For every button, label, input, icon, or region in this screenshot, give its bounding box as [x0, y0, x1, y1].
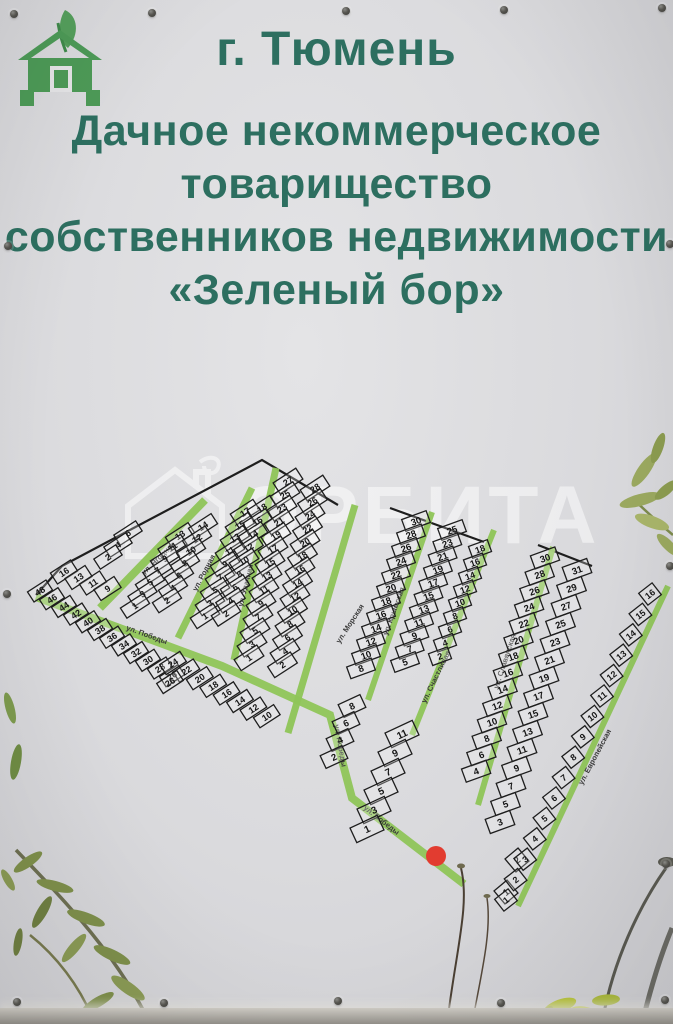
- sign-photo: г. Тюмень Дачное некоммерческое товарище…: [0, 0, 673, 1024]
- screw: [342, 7, 350, 15]
- screw: [661, 996, 669, 1004]
- screw: [497, 999, 505, 1007]
- sign-header: г. Тюмень Дачное некоммерческое товарище…: [0, 0, 673, 317]
- screw: [10, 10, 18, 18]
- org-line-4: «Зеленый бор»: [0, 264, 673, 317]
- screw: [334, 997, 342, 1005]
- org-line-2: товарищество: [0, 158, 673, 211]
- screw: [666, 562, 673, 570]
- screw: [666, 240, 673, 248]
- org-line-1: Дачное некоммерческое: [0, 105, 673, 158]
- screw: [4, 242, 12, 250]
- org-line-3: собственников недвижимости: [0, 211, 673, 264]
- screw: [3, 590, 11, 598]
- screw: [13, 998, 21, 1006]
- organization-title: Дачное некоммерческое товарищество собст…: [0, 105, 673, 317]
- city-title: г. Тюмень: [0, 22, 673, 77]
- screw: [658, 4, 666, 12]
- screw: [662, 860, 670, 868]
- screw: [160, 999, 168, 1007]
- screw: [500, 6, 508, 14]
- ground-strip: [0, 1008, 673, 1024]
- screw: [148, 9, 156, 17]
